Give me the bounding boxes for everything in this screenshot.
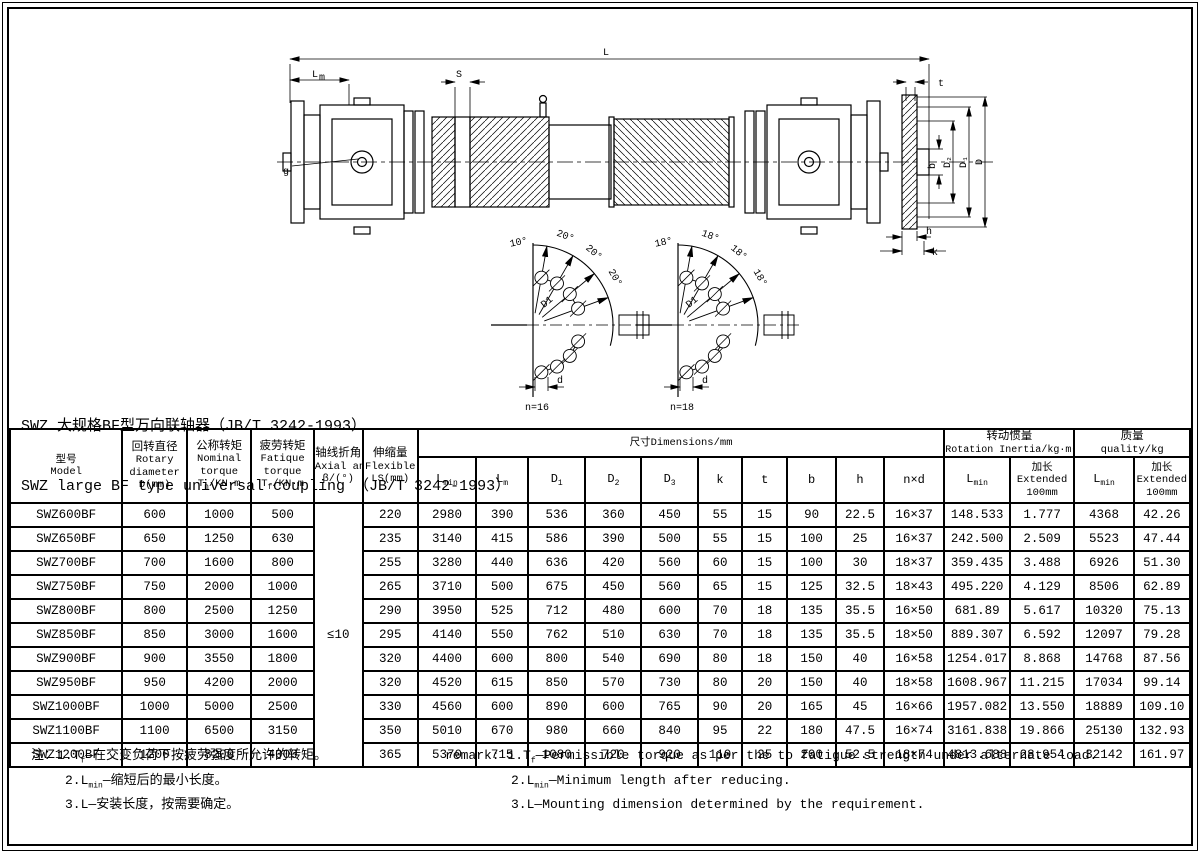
value-cell: 3140 bbox=[418, 527, 476, 551]
value-cell: 420 bbox=[585, 551, 641, 575]
dim-label-k: k bbox=[932, 247, 938, 259]
note-line: 2.Lmin—Minimum length after reducing. bbox=[445, 771, 1097, 796]
value-cell: 510 bbox=[585, 623, 641, 647]
value-cell: 360 bbox=[585, 503, 641, 527]
col-header-t: t bbox=[742, 457, 787, 503]
col-header-lmin: Lmin bbox=[418, 457, 476, 503]
value-cell: 636 bbox=[528, 551, 585, 575]
dim-label-t: t bbox=[938, 79, 944, 90]
value-cell: 6.592 bbox=[1010, 623, 1075, 647]
col-header-k: k bbox=[698, 457, 743, 503]
model-cell: SWZ600BF bbox=[10, 503, 122, 527]
col-header-inertia-lmin: Lmin bbox=[944, 457, 1010, 503]
value-cell: 1957.082 bbox=[944, 695, 1010, 719]
value-cell: 20 bbox=[742, 695, 787, 719]
value-cell: 560 bbox=[641, 575, 697, 599]
value-cell: 42.26 bbox=[1134, 503, 1190, 527]
value-cell: 25 bbox=[836, 527, 884, 551]
col-header-quality-lmin: Lmin bbox=[1074, 457, 1133, 503]
value-cell: 750 bbox=[122, 575, 187, 599]
dim-label-b: b bbox=[927, 163, 939, 169]
angle-label: 18° bbox=[654, 235, 674, 250]
value-cell: 415 bbox=[476, 527, 528, 551]
value-cell: 180 bbox=[787, 719, 836, 743]
value-cell: 79.28 bbox=[1134, 623, 1190, 647]
value-cell: 19.866 bbox=[1010, 719, 1075, 743]
value-cell: 390 bbox=[476, 503, 528, 527]
value-cell: 255 bbox=[363, 551, 418, 575]
value-cell: 730 bbox=[641, 671, 697, 695]
value-cell: 1254.017 bbox=[944, 647, 1010, 671]
value-cell: 500 bbox=[641, 527, 697, 551]
value-cell: 80 bbox=[698, 647, 743, 671]
value-cell: 950 bbox=[122, 671, 187, 695]
drawing-sheet: L L m S t g bbox=[0, 0, 1200, 853]
value-cell: 670 bbox=[476, 719, 528, 743]
value-cell: 32.5 bbox=[836, 575, 884, 599]
col-header-axial-angle: 轴线折角Axial angleβ/(°) bbox=[314, 429, 363, 503]
value-cell: 712 bbox=[528, 599, 585, 623]
value-cell: 3.488 bbox=[1010, 551, 1075, 575]
value-cell: 500 bbox=[251, 503, 313, 527]
value-cell: 242.500 bbox=[944, 527, 1010, 551]
value-cell: 450 bbox=[585, 575, 641, 599]
value-cell: 4560 bbox=[418, 695, 476, 719]
value-cell: 762 bbox=[528, 623, 585, 647]
sheet-frame: L L m S t g bbox=[7, 7, 1193, 846]
value-cell: 148.533 bbox=[944, 503, 1010, 527]
value-cell: 65 bbox=[698, 575, 743, 599]
value-cell: 560 bbox=[641, 551, 697, 575]
dim-label-h: h bbox=[926, 226, 932, 238]
table-row: SWZ650BF65012506302353140415586390500551… bbox=[10, 527, 1190, 551]
value-cell: 600 bbox=[476, 647, 528, 671]
note-line: 注：1.Tf—在交变负荷下按疲劳强度所允许的转矩。 bbox=[31, 746, 431, 771]
value-cell: 18×58 bbox=[884, 671, 944, 695]
shaft-assembly bbox=[283, 96, 888, 235]
model-cell: SWZ800BF bbox=[10, 599, 122, 623]
angle-label: 20° bbox=[605, 267, 624, 289]
value-cell: 40 bbox=[836, 671, 884, 695]
col-header-lm: Lm bbox=[476, 457, 528, 503]
value-cell: 47.5 bbox=[836, 719, 884, 743]
value-cell: 22.5 bbox=[836, 503, 884, 527]
note-line: 3.L—Mounting dimension determined by the… bbox=[445, 795, 1097, 820]
value-cell: 4200 bbox=[187, 671, 252, 695]
value-cell: 150 bbox=[787, 647, 836, 671]
value-cell: 95 bbox=[698, 719, 743, 743]
value-cell: 15 bbox=[742, 575, 787, 599]
model-cell: SWZ650BF bbox=[10, 527, 122, 551]
value-cell: 16×74 bbox=[884, 719, 944, 743]
note-line: remark: 1.Tf—Permissible torque as per t… bbox=[445, 746, 1097, 771]
bolt-circle-diagram-n16 bbox=[491, 243, 657, 397]
value-cell: 15 bbox=[742, 503, 787, 527]
angle-label: 20° bbox=[583, 243, 605, 264]
value-cell: 615 bbox=[476, 671, 528, 695]
angle-label: 18° bbox=[750, 267, 769, 289]
value-cell: 1600 bbox=[187, 551, 252, 575]
value-cell: 540 bbox=[585, 647, 641, 671]
value-cell: 8506 bbox=[1074, 575, 1133, 599]
value-cell: 1250 bbox=[187, 527, 252, 551]
col-header-flexible: 伸缩量FlexibleLS(mm) bbox=[363, 429, 418, 503]
value-cell: 850 bbox=[122, 623, 187, 647]
value-cell: 150 bbox=[787, 671, 836, 695]
value-cell: 550 bbox=[476, 623, 528, 647]
value-cell: 359.435 bbox=[944, 551, 1010, 575]
notes-chinese: 注：1.Tf—在交变负荷下按疲劳强度所允许的转矩。 2.Lmin—缩短后的最小长… bbox=[31, 746, 431, 820]
value-cell: 850 bbox=[528, 671, 585, 695]
col-header-b: b bbox=[787, 457, 836, 503]
table-row: SWZ750BF75020001000265371050067545056065… bbox=[10, 575, 1190, 599]
value-cell: 600 bbox=[476, 695, 528, 719]
value-cell: 840 bbox=[641, 719, 697, 743]
value-cell: 1000 bbox=[122, 695, 187, 719]
angle-label: 10° bbox=[509, 235, 529, 250]
bolt-circle-diagram-n18 bbox=[636, 243, 802, 397]
value-cell: 1000 bbox=[251, 575, 313, 599]
value-cell: 800 bbox=[528, 647, 585, 671]
value-cell: 5.617 bbox=[1010, 599, 1075, 623]
value-cell: 3710 bbox=[418, 575, 476, 599]
value-cell: 90 bbox=[787, 503, 836, 527]
value-cell: 12097 bbox=[1074, 623, 1133, 647]
value-cell: 3150 bbox=[251, 719, 313, 743]
angle-label: 18° bbox=[700, 228, 721, 245]
value-cell: 125 bbox=[787, 575, 836, 599]
model-cell: SWZ850BF bbox=[10, 623, 122, 647]
value-cell: 55 bbox=[698, 503, 743, 527]
value-cell: 440 bbox=[476, 551, 528, 575]
model-cell: SWZ1000BF bbox=[10, 695, 122, 719]
value-cell: 2000 bbox=[251, 671, 313, 695]
group-header-inertia: 转动惯量Rotation Inertia/kg·m² bbox=[944, 429, 1074, 457]
dim-label-Lm: L bbox=[312, 70, 318, 81]
hole-diameter-label: d bbox=[702, 375, 708, 387]
value-cell: 90 bbox=[698, 695, 743, 719]
notes-label: 注： bbox=[31, 748, 57, 763]
col-header-d1: D1 bbox=[528, 457, 585, 503]
value-cell: 5523 bbox=[1074, 527, 1133, 551]
value-cell: 600 bbox=[122, 503, 187, 527]
value-cell: 681.89 bbox=[944, 599, 1010, 623]
model-cell: SWZ1100BF bbox=[10, 719, 122, 743]
value-cell: 17034 bbox=[1074, 671, 1133, 695]
col-header-quality-extended: 加长Extended100mm bbox=[1134, 457, 1190, 503]
dim-label-S: S bbox=[456, 70, 462, 81]
value-cell: 3550 bbox=[187, 647, 252, 671]
value-cell: 980 bbox=[528, 719, 585, 743]
value-cell: 5010 bbox=[418, 719, 476, 743]
value-cell: 8.868 bbox=[1010, 647, 1075, 671]
dim-label-g: g bbox=[283, 167, 289, 178]
value-cell: 16×58 bbox=[884, 647, 944, 671]
value-cell: 35.5 bbox=[836, 623, 884, 647]
table-body: SWZ600BF6001000500≤102202980390536360450… bbox=[10, 503, 1190, 767]
value-cell: 13.550 bbox=[1010, 695, 1075, 719]
col-header-diameter: 回转直径RotarydiameterD(mm) bbox=[122, 429, 187, 503]
value-cell: 47.44 bbox=[1134, 527, 1190, 551]
value-cell: 900 bbox=[122, 647, 187, 671]
value-cell: 55 bbox=[698, 527, 743, 551]
table-row: SWZ800BF80025001250290395052571248060070… bbox=[10, 599, 1190, 623]
table-row: SWZ950BF95042002000320452061585057073080… bbox=[10, 671, 1190, 695]
value-cell: 100 bbox=[787, 527, 836, 551]
value-cell: 495.220 bbox=[944, 575, 1010, 599]
value-cell: 390 bbox=[585, 527, 641, 551]
value-cell: 135 bbox=[787, 599, 836, 623]
dim-label-D1: D₁ bbox=[959, 156, 970, 168]
value-cell: 18889 bbox=[1074, 695, 1133, 719]
value-cell: 3950 bbox=[418, 599, 476, 623]
specification-table: 型号Model 回转直径RotarydiameterD(mm) 公称转矩Nomi… bbox=[9, 428, 1191, 768]
value-cell: 1600 bbox=[251, 623, 313, 647]
value-cell: 40 bbox=[836, 647, 884, 671]
table-row: SWZ1100BF1100650031503505010670980660840… bbox=[10, 719, 1190, 743]
value-cell: 132.93 bbox=[1134, 719, 1190, 743]
value-cell: 600 bbox=[641, 599, 697, 623]
value-cell: 18×37 bbox=[884, 551, 944, 575]
value-cell: 2980 bbox=[418, 503, 476, 527]
value-cell: 4140 bbox=[418, 623, 476, 647]
value-cell: 450 bbox=[641, 503, 697, 527]
value-cell: 35.5 bbox=[836, 599, 884, 623]
value-cell: 690 bbox=[641, 647, 697, 671]
value-cell: 570 bbox=[585, 671, 641, 695]
value-cell: 45 bbox=[836, 695, 884, 719]
value-cell: 800 bbox=[122, 599, 187, 623]
value-cell: 14768 bbox=[1074, 647, 1133, 671]
value-cell: 18×43 bbox=[884, 575, 944, 599]
col-header-fatigue-torque: 疲劳转矩FatiquetorqueTf/KN·m bbox=[251, 429, 313, 503]
value-cell: 20 bbox=[742, 671, 787, 695]
value-cell: 100 bbox=[787, 551, 836, 575]
table-row: SWZ600BF6001000500≤102202980390536360450… bbox=[10, 503, 1190, 527]
value-cell: 60 bbox=[698, 551, 743, 575]
dim-label-Lm-sub: m bbox=[319, 73, 325, 84]
value-cell: 889.307 bbox=[944, 623, 1010, 647]
value-cell: 80 bbox=[698, 671, 743, 695]
value-cell: 18×50 bbox=[884, 623, 944, 647]
value-cell: 650 bbox=[122, 527, 187, 551]
bolt-count-caption: n=18 bbox=[670, 403, 694, 414]
value-cell: 15 bbox=[742, 527, 787, 551]
value-cell: 51.30 bbox=[1134, 551, 1190, 575]
value-cell: 16×50 bbox=[884, 599, 944, 623]
dim-label-D2: D₂ bbox=[943, 156, 954, 168]
model-cell: SWZ950BF bbox=[10, 671, 122, 695]
value-cell: 630 bbox=[251, 527, 313, 551]
value-cell: 70 bbox=[698, 623, 743, 647]
table-row: SWZ900BF90035501800320440060080054069080… bbox=[10, 647, 1190, 671]
value-cell: 109.10 bbox=[1134, 695, 1190, 719]
value-cell: 87.56 bbox=[1134, 647, 1190, 671]
value-cell: 62.89 bbox=[1134, 575, 1190, 599]
value-cell: 75.13 bbox=[1134, 599, 1190, 623]
value-cell: 265 bbox=[363, 575, 418, 599]
value-cell: 1.777 bbox=[1010, 503, 1075, 527]
value-cell: 5000 bbox=[187, 695, 252, 719]
value-cell: 2500 bbox=[187, 599, 252, 623]
value-cell: 350 bbox=[363, 719, 418, 743]
value-cell: 220 bbox=[363, 503, 418, 527]
table-header: 型号Model 回转直径RotarydiameterD(mm) 公称转矩Nomi… bbox=[10, 429, 1190, 503]
value-cell: 1250 bbox=[251, 599, 313, 623]
flange-section bbox=[902, 95, 929, 229]
col-header-h: h bbox=[836, 457, 884, 503]
dim-label-D: D bbox=[975, 159, 986, 165]
remark-label: remark: bbox=[445, 748, 500, 763]
value-cell: 3161.838 bbox=[944, 719, 1010, 743]
value-cell: 6500 bbox=[187, 719, 252, 743]
notes-english: remark: 1.Tf—Permissible torque as per t… bbox=[445, 746, 1097, 820]
table-row: SWZ700BF70016008002553280440636420560601… bbox=[10, 551, 1190, 575]
value-cell: 11.215 bbox=[1010, 671, 1075, 695]
value-cell: 99.14 bbox=[1134, 671, 1190, 695]
value-cell: 4.129 bbox=[1010, 575, 1075, 599]
value-cell: 18 bbox=[742, 599, 787, 623]
value-cell: 320 bbox=[363, 671, 418, 695]
col-header-inertia-extended: 加长Extended100mm bbox=[1010, 457, 1075, 503]
note-line: 3.L—安装长度，按需要确定。 bbox=[31, 795, 431, 820]
table-row: SWZ1000BF1000500025003304560600890600765… bbox=[10, 695, 1190, 719]
angle-label: 18° bbox=[728, 243, 750, 264]
value-cell: 135 bbox=[787, 623, 836, 647]
value-cell: 16×37 bbox=[884, 527, 944, 551]
value-cell: 586 bbox=[528, 527, 585, 551]
value-cell: 25130 bbox=[1074, 719, 1133, 743]
value-cell: 890 bbox=[528, 695, 585, 719]
value-cell: 525 bbox=[476, 599, 528, 623]
model-cell: SWZ750BF bbox=[10, 575, 122, 599]
value-cell: 18 bbox=[742, 647, 787, 671]
value-cell: 70 bbox=[698, 599, 743, 623]
value-cell: 290 bbox=[363, 599, 418, 623]
group-header-quality: 质量quality/kg bbox=[1074, 429, 1190, 457]
value-cell: 16×37 bbox=[884, 503, 944, 527]
value-cell: 4368 bbox=[1074, 503, 1133, 527]
model-cell: SWZ700BF bbox=[10, 551, 122, 575]
value-cell: 16×66 bbox=[884, 695, 944, 719]
value-cell: 536 bbox=[528, 503, 585, 527]
value-cell: 235 bbox=[363, 527, 418, 551]
value-cell: 1800 bbox=[251, 647, 313, 671]
value-cell: 4400 bbox=[418, 647, 476, 671]
value-cell: 600 bbox=[585, 695, 641, 719]
value-cell: 3280 bbox=[418, 551, 476, 575]
value-cell: 6926 bbox=[1074, 551, 1133, 575]
hole-diameter-label: d bbox=[557, 375, 563, 387]
value-cell: 480 bbox=[585, 599, 641, 623]
value-cell: 2500 bbox=[251, 695, 313, 719]
value-cell: 500 bbox=[476, 575, 528, 599]
model-cell: SWZ900BF bbox=[10, 647, 122, 671]
value-cell: 800 bbox=[251, 551, 313, 575]
value-cell: 165 bbox=[787, 695, 836, 719]
value-cell: 320 bbox=[363, 647, 418, 671]
angle-label: 20° bbox=[555, 228, 576, 245]
value-cell: 2000 bbox=[187, 575, 252, 599]
table-row: SWZ850BF85030001600295414055076251063070… bbox=[10, 623, 1190, 647]
col-header-nominal-torque: 公称转矩NominaltorqueTn/KN·m bbox=[187, 429, 252, 503]
value-cell: 10320 bbox=[1074, 599, 1133, 623]
value-cell: 330 bbox=[363, 695, 418, 719]
col-header-d2: D2 bbox=[585, 457, 641, 503]
value-cell: 1608.967 bbox=[944, 671, 1010, 695]
value-cell: 4520 bbox=[418, 671, 476, 695]
value-cell: 30 bbox=[836, 551, 884, 575]
value-cell: 630 bbox=[641, 623, 697, 647]
value-cell: 18 bbox=[742, 623, 787, 647]
value-cell: 2.509 bbox=[1010, 527, 1075, 551]
col-header-model: 型号Model bbox=[10, 429, 122, 503]
col-header-nxd: n×d bbox=[884, 457, 944, 503]
coupling-drawing: L L m S t g bbox=[9, 9, 1191, 423]
value-cell: 765 bbox=[641, 695, 697, 719]
col-header-d3: D3 bbox=[641, 457, 697, 503]
value-cell: 3000 bbox=[187, 623, 252, 647]
note-line: 2.Lmin—缩短后的最小长度。 bbox=[31, 771, 431, 796]
value-cell: 1000 bbox=[187, 503, 252, 527]
value-cell: 1100 bbox=[122, 719, 187, 743]
flange-dimension-chains bbox=[880, 97, 987, 255]
value-cell: 660 bbox=[585, 719, 641, 743]
axial-angle-cell: ≤10 bbox=[314, 503, 363, 767]
value-cell: 295 bbox=[363, 623, 418, 647]
value-cell: 22 bbox=[742, 719, 787, 743]
bolt-count-caption: n=16 bbox=[525, 403, 549, 414]
dim-label-L: L bbox=[603, 48, 609, 59]
group-header-dimensions: 尺寸Dimensions/mm bbox=[418, 429, 944, 457]
notes-section: 注：1.Tf—在交变负荷下按疲劳强度所允许的转矩。 2.Lmin—缩短后的最小长… bbox=[9, 746, 1191, 820]
value-cell: 700 bbox=[122, 551, 187, 575]
value-cell: 15 bbox=[742, 551, 787, 575]
value-cell: 675 bbox=[528, 575, 585, 599]
